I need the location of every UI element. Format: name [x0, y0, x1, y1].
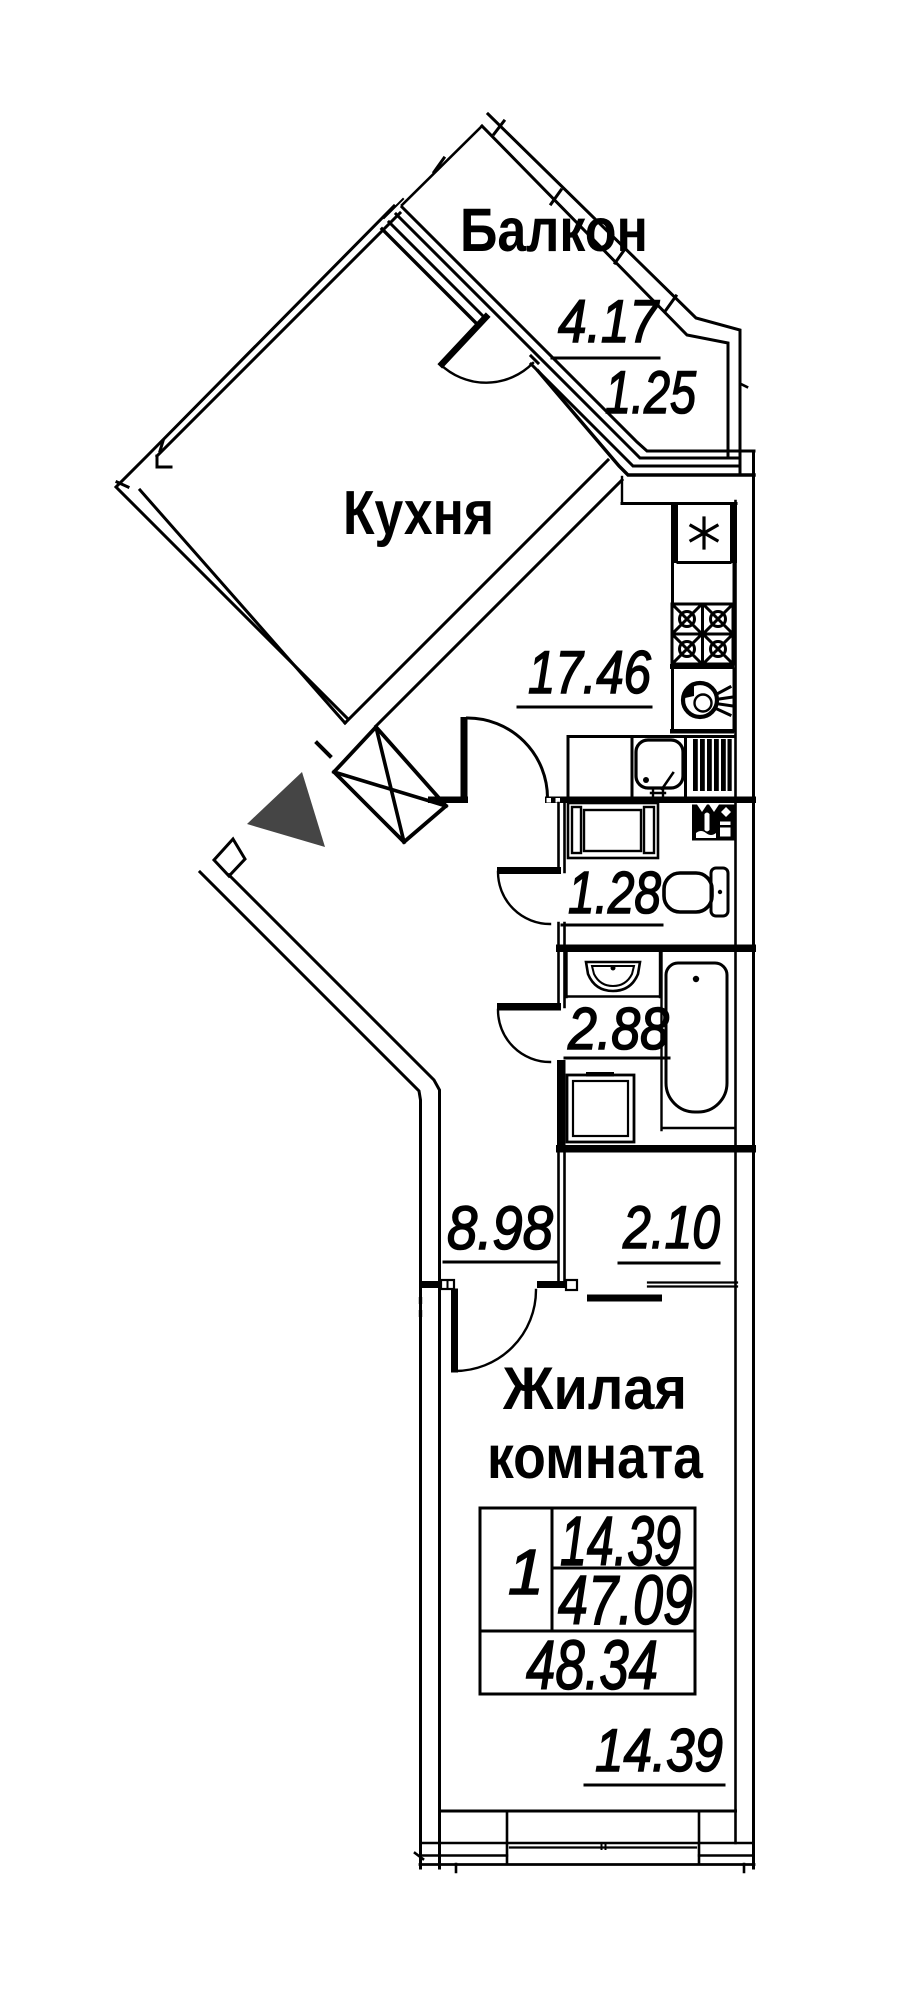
svg-text:1: 1 — [508, 1536, 544, 1608]
svg-text:8.98: 8.98 — [447, 1194, 553, 1262]
svg-text:4.17: 4.17 — [558, 288, 660, 355]
svg-text:17.46: 17.46 — [528, 639, 652, 706]
svg-text:комната: комната — [487, 1423, 704, 1491]
svg-text:1.25: 1.25 — [605, 359, 696, 426]
svg-text:1.28: 1.28 — [568, 860, 661, 926]
svg-text:48.34: 48.34 — [526, 1626, 658, 1704]
svg-text:Жилая: Жилая — [502, 1355, 687, 1422]
svg-text:2.88: 2.88 — [567, 996, 669, 1062]
svg-text:Балкон: Балкон — [460, 196, 648, 264]
svg-text:Кухня: Кухня — [343, 479, 494, 548]
svg-text:2.10: 2.10 — [622, 1194, 720, 1261]
svg-text:14.39: 14.39 — [595, 1717, 723, 1784]
